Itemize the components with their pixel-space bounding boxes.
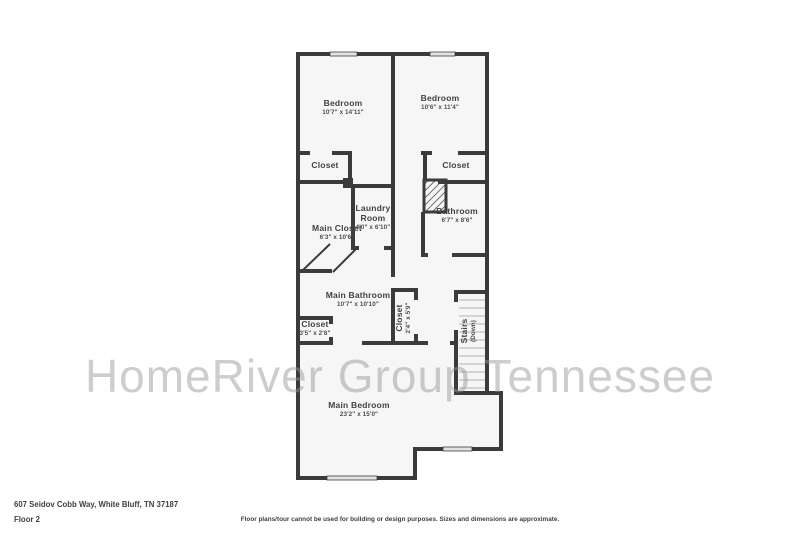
room-label-bedroom-2: Bedroom 10'6" x 11'4" — [421, 94, 460, 112]
room-name: Closet — [299, 320, 330, 330]
window — [327, 476, 377, 480]
room-name: Closet — [395, 302, 405, 333]
room-name: Bedroom — [322, 99, 364, 109]
window — [430, 52, 455, 56]
room-name: Stairs — [460, 319, 470, 344]
room-label-main-bathroom: Main Bathroom 10'7" x 10'10" — [326, 291, 390, 309]
room-dims: 6'7" x 8'6" — [436, 217, 478, 225]
floorplan-drawing — [0, 0, 800, 533]
window — [443, 447, 472, 451]
room-label-stairs: Stairs (Down) — [460, 319, 478, 344]
room-label-laundry: Laundry Room 4'0" x 6'10" — [350, 204, 396, 232]
property-address: 607 Seidov Cobb Way, White Bluff, TN 371… — [14, 500, 178, 509]
room-dims: 10'6" x 11'4" — [421, 104, 460, 112]
room-name: Bathroom — [436, 207, 478, 217]
room-dims: 10'7" x 10'10" — [326, 301, 390, 309]
room-dims: 6'3" x 10'6" — [312, 234, 362, 242]
room-label-closet-small: Closet 3'5" x 2'8" — [299, 320, 330, 338]
floorplan-page: Bedroom 10'7" x 14'11" Bedroom 10'6" x 1… — [0, 0, 800, 533]
room-label-bathroom: Bathroom 6'7" x 8'6" — [436, 207, 478, 225]
room-label-main-bedroom: Main Bedroom 23'2" x 15'0" — [328, 401, 389, 419]
disclaimer-text: Floor plans/tour cannot be used for buil… — [0, 516, 800, 523]
room-name: Laundry Room — [350, 204, 396, 224]
room-dims: 4'0" x 6'10" — [350, 224, 396, 232]
room-label-closet-tall: Closet 2'4" x 5'9" — [395, 302, 413, 333]
room-label-closet-bed2: Closet — [442, 161, 469, 171]
room-name: Main Bathroom — [326, 291, 390, 301]
room-label-bedroom-1: Bedroom 10'7" x 14'11" — [322, 99, 364, 117]
watermark-text: HomeRiver Group Tennessee — [85, 349, 715, 403]
room-dims: 2'4" x 5'9" — [405, 302, 413, 333]
room-dims: 23'2" x 15'0" — [328, 411, 389, 419]
room-name: Closet — [311, 161, 338, 171]
window — [330, 52, 357, 56]
room-dims: 10'7" x 14'11" — [322, 109, 364, 117]
room-dims: (Down) — [470, 319, 478, 344]
room-dims: 3'5" x 2'8" — [299, 330, 330, 338]
room-label-closet-bed1: Closet — [311, 161, 338, 171]
room-name: Bedroom — [421, 94, 460, 104]
room-name: Closet — [442, 161, 469, 171]
